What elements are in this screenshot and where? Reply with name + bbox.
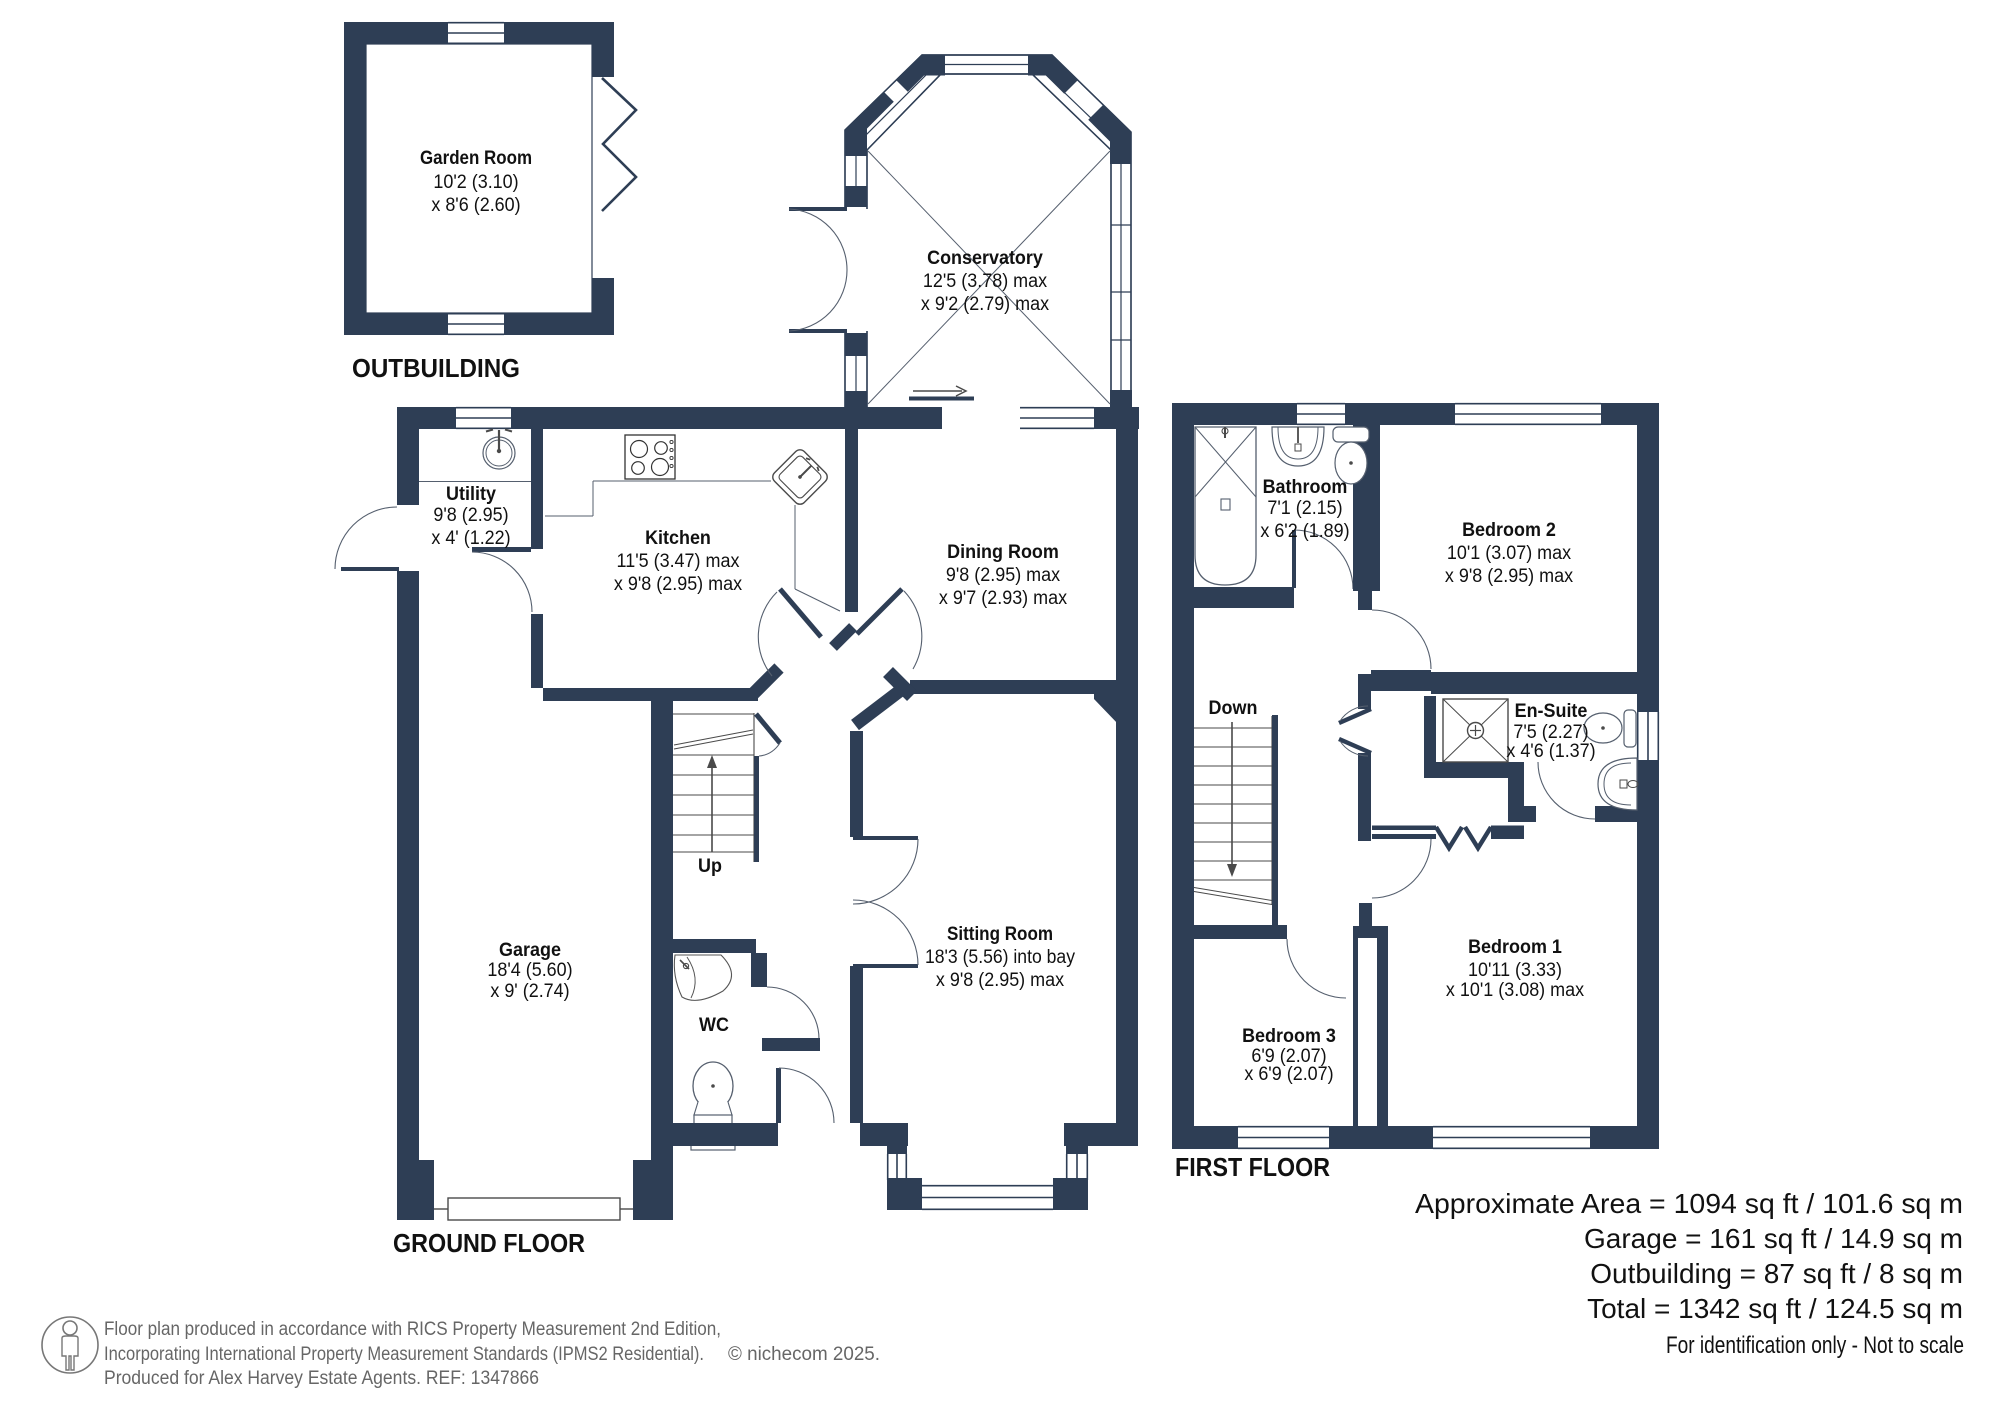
svg-text:Floor plan produced in accorda: Floor plan produced in accordance with R… (104, 1319, 721, 1340)
svg-text:7'5 (2.27): 7'5 (2.27) (1513, 722, 1588, 743)
svg-text:x 6'2 (1.89): x 6'2 (1.89) (1260, 521, 1349, 542)
svg-text:x 8'6 (2.60): x 8'6 (2.60) (431, 195, 520, 216)
svg-text:En-Suite: En-Suite (1515, 701, 1588, 722)
svg-text:Total = 1342 sq ft / 124.5 sq: Total = 1342 sq ft / 124.5 sq m (1587, 1293, 1963, 1324)
svg-text:Produced for Alex Harvey Estat: Produced for Alex Harvey Estate Agents. … (104, 1368, 539, 1389)
svg-text:OUTBUILDING: OUTBUILDING (352, 355, 520, 383)
svg-text:Up: Up (698, 856, 722, 877)
svg-text:10'2 (3.10): 10'2 (3.10) (433, 172, 518, 193)
svg-text:x 9'8 (2.95) max: x 9'8 (2.95) max (936, 970, 1065, 991)
svg-text:x 9'2 (2.79) max: x 9'2 (2.79) max (921, 294, 1050, 315)
svg-text:For identification only - Not: For identification only - Not to scale (1666, 1332, 1964, 1359)
svg-text:Bedroom 3: Bedroom 3 (1242, 1026, 1336, 1047)
svg-text:Approximate Area = 1094 sq ft: Approximate Area = 1094 sq ft / 101.6 sq… (1415, 1188, 1963, 1219)
svg-text:Bathroom: Bathroom (1263, 477, 1348, 498)
svg-text:7'1 (2.15): 7'1 (2.15) (1267, 498, 1342, 519)
svg-text:11'5 (3.47) max: 11'5 (3.47) max (617, 551, 740, 572)
svg-text:12'5 (3.78) max: 12'5 (3.78) max (923, 271, 1048, 292)
svg-text:Incorporating International Pr: Incorporating International Property Mea… (104, 1344, 704, 1365)
svg-text:Garage: Garage (499, 940, 561, 961)
svg-text:© nichecom 2025.: © nichecom 2025. (728, 1344, 880, 1365)
svg-text:GROUND FLOOR: GROUND FLOOR (393, 1230, 585, 1258)
svg-text:9'8 (2.95): 9'8 (2.95) (433, 505, 508, 526)
svg-text:18'3 (5.56) into bay: 18'3 (5.56) into bay (925, 947, 1075, 968)
svg-text:x 10'1 (3.08) max: x 10'1 (3.08) max (1446, 980, 1585, 1001)
svg-text:10'11 (3.33): 10'11 (3.33) (1468, 960, 1562, 981)
svg-text:Garage = 161 sq ft / 14.9 sq m: Garage = 161 sq ft / 14.9 sq m (1584, 1223, 1963, 1254)
svg-text:x 9'8 (2.95) max: x 9'8 (2.95) max (1445, 566, 1574, 587)
svg-text:Bedroom 2: Bedroom 2 (1462, 520, 1556, 541)
svg-text:Down: Down (1209, 698, 1258, 719)
svg-text:x 4'6 (1.37): x 4'6 (1.37) (1506, 741, 1595, 762)
svg-text:x 9' (2.74): x 9' (2.74) (490, 981, 569, 1002)
svg-text:9'8 (2.95) max: 9'8 (2.95) max (946, 565, 1061, 586)
svg-text:x 9'7 (2.93) max: x 9'7 (2.93) max (939, 588, 1068, 609)
svg-text:Bedroom 1: Bedroom 1 (1468, 937, 1562, 958)
svg-text:Kitchen: Kitchen (645, 528, 711, 549)
svg-text:Utility: Utility (446, 484, 496, 505)
svg-text:Sitting Room: Sitting Room (947, 924, 1053, 945)
svg-text:Outbuilding = 87 sq ft / 8 sq: Outbuilding = 87 sq ft / 8 sq m (1590, 1258, 1963, 1289)
svg-text:x 6'9 (2.07): x 6'9 (2.07) (1244, 1064, 1333, 1085)
svg-text:10'1 (3.07) max: 10'1 (3.07) max (1447, 543, 1572, 564)
svg-text:Conservatory: Conservatory (927, 248, 1043, 269)
svg-text:WC: WC (699, 1015, 729, 1036)
svg-text:FIRST FLOOR: FIRST FLOOR (1175, 1154, 1330, 1182)
svg-text:18'4 (5.60): 18'4 (5.60) (487, 960, 572, 981)
svg-text:Garden Room: Garden Room (420, 148, 532, 169)
svg-text:Dining Room: Dining Room (947, 542, 1059, 563)
svg-text:x 9'8 (2.95) max: x 9'8 (2.95) max (614, 574, 743, 595)
svg-text:x 4' (1.22): x 4' (1.22) (431, 528, 510, 549)
